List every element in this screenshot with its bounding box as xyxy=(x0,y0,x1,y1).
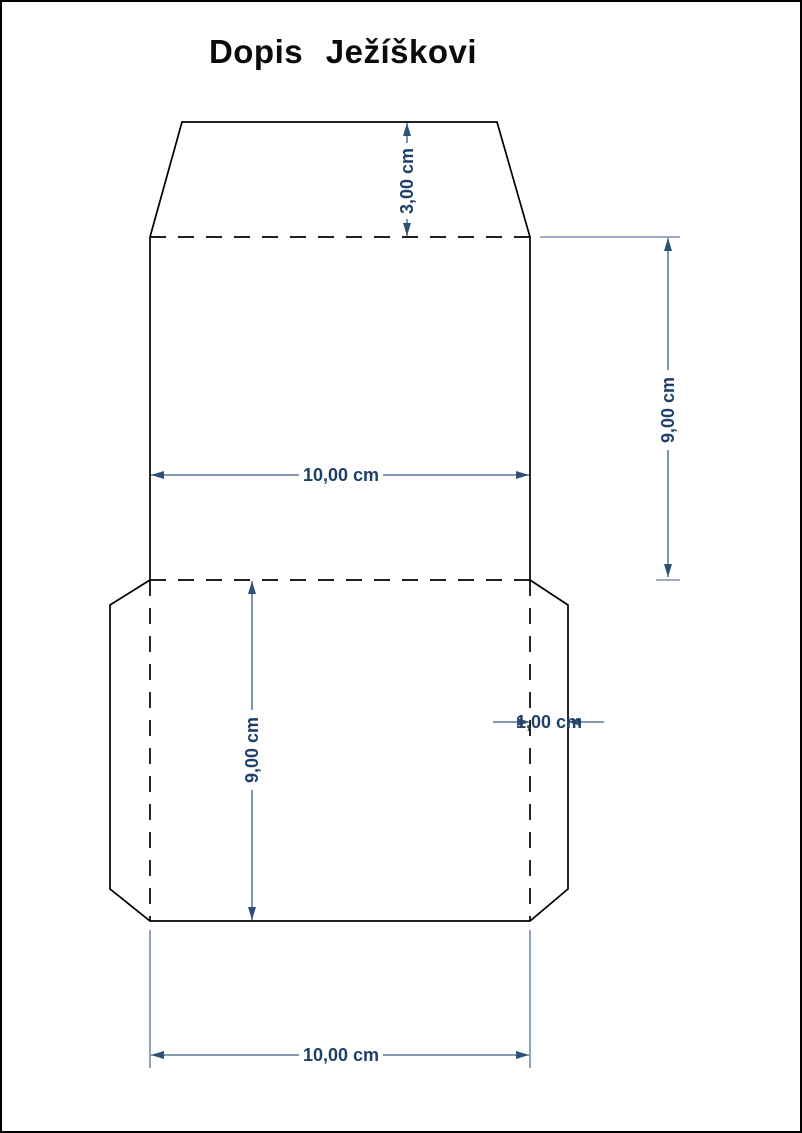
dimension-flap-height: 3,00 cm xyxy=(397,123,418,236)
dimension-label: 10,00 cm xyxy=(303,1045,379,1065)
envelope-template-drawing: 3,00 cm 10,00 cm 9,00 cm xyxy=(0,0,802,1133)
dimension-label-wrap: 9,00 cm xyxy=(658,370,679,450)
dimension-body-width: 10,00 cm xyxy=(151,464,529,485)
arrow-down-icon xyxy=(403,223,411,236)
arrow-left-icon xyxy=(151,471,164,479)
arrow-right-icon xyxy=(516,1051,529,1059)
dimension-bottom-width: 10,00 cm xyxy=(150,930,530,1068)
arrow-up-icon xyxy=(403,123,411,136)
dimension-label-wrap: 3,00 cm xyxy=(397,143,418,219)
envelope-cut-outline xyxy=(110,122,568,921)
arrow-down-icon xyxy=(664,564,672,577)
dimension-label: 1,00 cm xyxy=(516,712,582,732)
arrow-left-icon xyxy=(151,1051,164,1059)
dimension-label: 10,00 cm xyxy=(303,465,379,485)
drawing-page: Dopis Ježíškovi 3,00 cm xyxy=(0,0,802,1133)
dimension-label: 9,00 cm xyxy=(242,717,262,783)
dimension-back-height: 9,00 cm xyxy=(242,581,263,920)
dimension-side-flap-width: 1,00 cm xyxy=(493,712,604,732)
cut-outline-group xyxy=(110,122,568,921)
arrow-up-icon xyxy=(248,581,256,594)
dimension-label-wrap: 9,00 cm xyxy=(242,710,263,790)
dimension-body-height: 9,00 cm xyxy=(540,237,680,580)
dimension-label: 3,00 cm xyxy=(397,148,417,214)
dimension-label: 9,00 cm xyxy=(658,377,678,443)
arrow-right-icon xyxy=(516,471,529,479)
fold-lines-group xyxy=(150,237,530,921)
arrow-down-icon xyxy=(248,907,256,920)
arrow-up-icon xyxy=(664,238,672,251)
